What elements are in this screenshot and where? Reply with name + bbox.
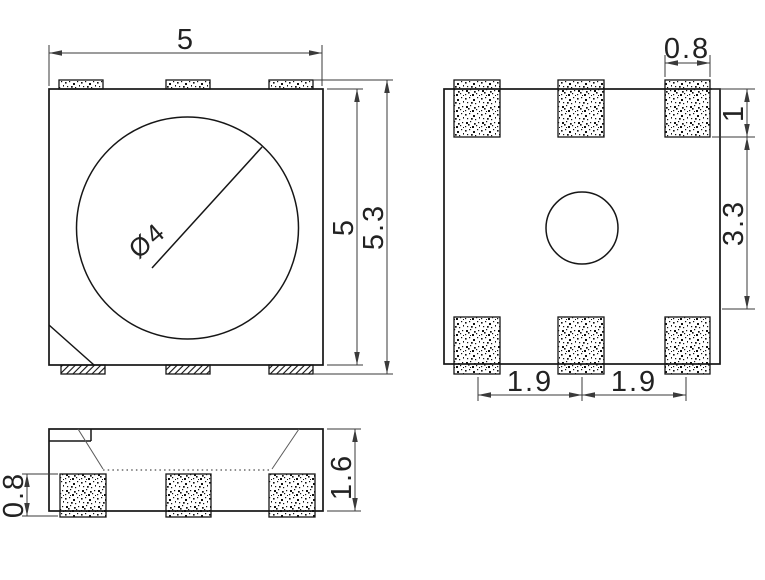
front-top-pad: [166, 80, 210, 89]
side-lead-pad: [269, 474, 315, 517]
dim-label-side-height: 1.6: [326, 454, 358, 500]
front-bottom-pad: [269, 365, 313, 374]
front-bottom-pad: [61, 365, 105, 374]
drawing-sheet: Ø4 5 5 5.3 0.8: [0, 0, 765, 580]
front-body: [49, 89, 323, 365]
dim-label-front-width: 5: [177, 24, 195, 56]
dim-label-pitch-right: 1.9: [611, 366, 657, 398]
dim-label-lead-thickness: 0.8: [0, 472, 30, 518]
front-view: Ø4 5 5 5.3: [49, 24, 393, 374]
solder-pad: [454, 317, 500, 374]
dim-label-front-height: 5: [328, 218, 360, 236]
solder-pad: [558, 317, 604, 374]
front-top-pad: [269, 80, 313, 89]
dim-label-front-overall-height: 5.3: [358, 204, 390, 250]
side-lead-pad: [166, 474, 211, 517]
dim-label-pad-height: 1: [718, 104, 750, 122]
dim-label-pitch-left: 1.9: [507, 366, 553, 398]
solder-pad: [558, 80, 604, 137]
package-outline-drawing: Ø4 5 5 5.3 0.8: [0, 0, 765, 580]
bottom-view: 0.8 1 3.3 1.9 1.9: [444, 33, 755, 401]
solder-pad: [665, 317, 710, 374]
dim-label-pad-width: 0.8: [664, 33, 710, 65]
solder-pad: [665, 80, 710, 137]
side-lead-pad: [60, 474, 106, 517]
side-view: 0.8 1.6: [0, 429, 361, 518]
dim-label-pad-gap: 3.3: [718, 200, 750, 246]
solder-pad: [454, 80, 500, 137]
front-top-pad: [59, 80, 103, 89]
front-bottom-pad: [166, 365, 210, 374]
